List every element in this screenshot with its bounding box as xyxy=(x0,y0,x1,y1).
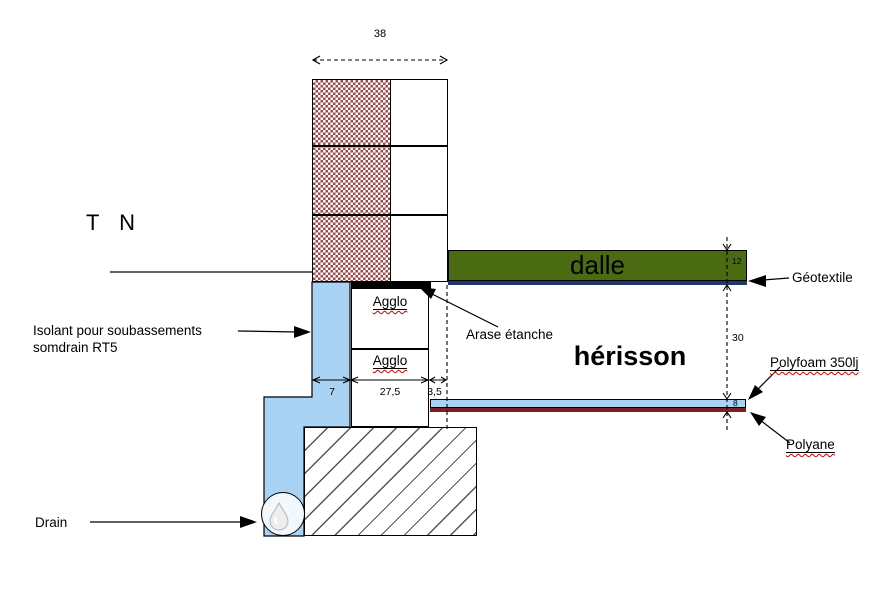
polyfoam-label: Polyfoam 350lj xyxy=(770,354,859,371)
drain-pipe xyxy=(261,492,305,536)
isolant-label: Isolant pour soubassements somdrain RT5 xyxy=(33,322,202,356)
geotextile-arrowhead xyxy=(748,275,766,287)
dim-gap-width: 3,5 xyxy=(422,386,447,398)
isolant-arrowhead xyxy=(294,326,311,338)
dim-agglo-width: 27,5 xyxy=(352,386,428,398)
tn-label: T N xyxy=(86,210,142,236)
agglo-bottom-label: Agglo xyxy=(351,353,429,368)
dim-polyfoam-thickness: 8 xyxy=(733,398,738,408)
water-drop-icon xyxy=(262,493,302,533)
geotextile-label: Géotextile xyxy=(792,269,853,286)
polyane-arrowhead xyxy=(750,412,766,426)
isolant-leader-line xyxy=(238,331,298,332)
arase-etanche-label: Arase étanche xyxy=(466,326,553,343)
drain-label: Drain xyxy=(35,514,67,531)
herisson-label: hérisson xyxy=(555,341,705,372)
dim-dalle-thickness: 12 xyxy=(732,256,741,266)
polyfoam-arrowhead xyxy=(748,385,763,400)
dim-herisson-height: 30 xyxy=(732,332,744,344)
dim-insulation-width: 7 xyxy=(312,386,352,398)
polyane-label: Polyane xyxy=(786,436,835,453)
agglo-top-label: Agglo xyxy=(351,294,429,309)
isolant-label-line1: Isolant pour soubassements xyxy=(33,322,202,339)
geotextile-leader-line xyxy=(763,278,789,280)
isolant-label-line2: somdrain RT5 xyxy=(33,339,202,356)
foundation-section-diagram: dalle xyxy=(0,0,877,601)
diagram-linework xyxy=(0,0,877,601)
drain-arrowhead xyxy=(240,516,257,528)
dim-wall-width: 38 xyxy=(312,28,448,40)
arase-leader-line xyxy=(430,293,498,327)
